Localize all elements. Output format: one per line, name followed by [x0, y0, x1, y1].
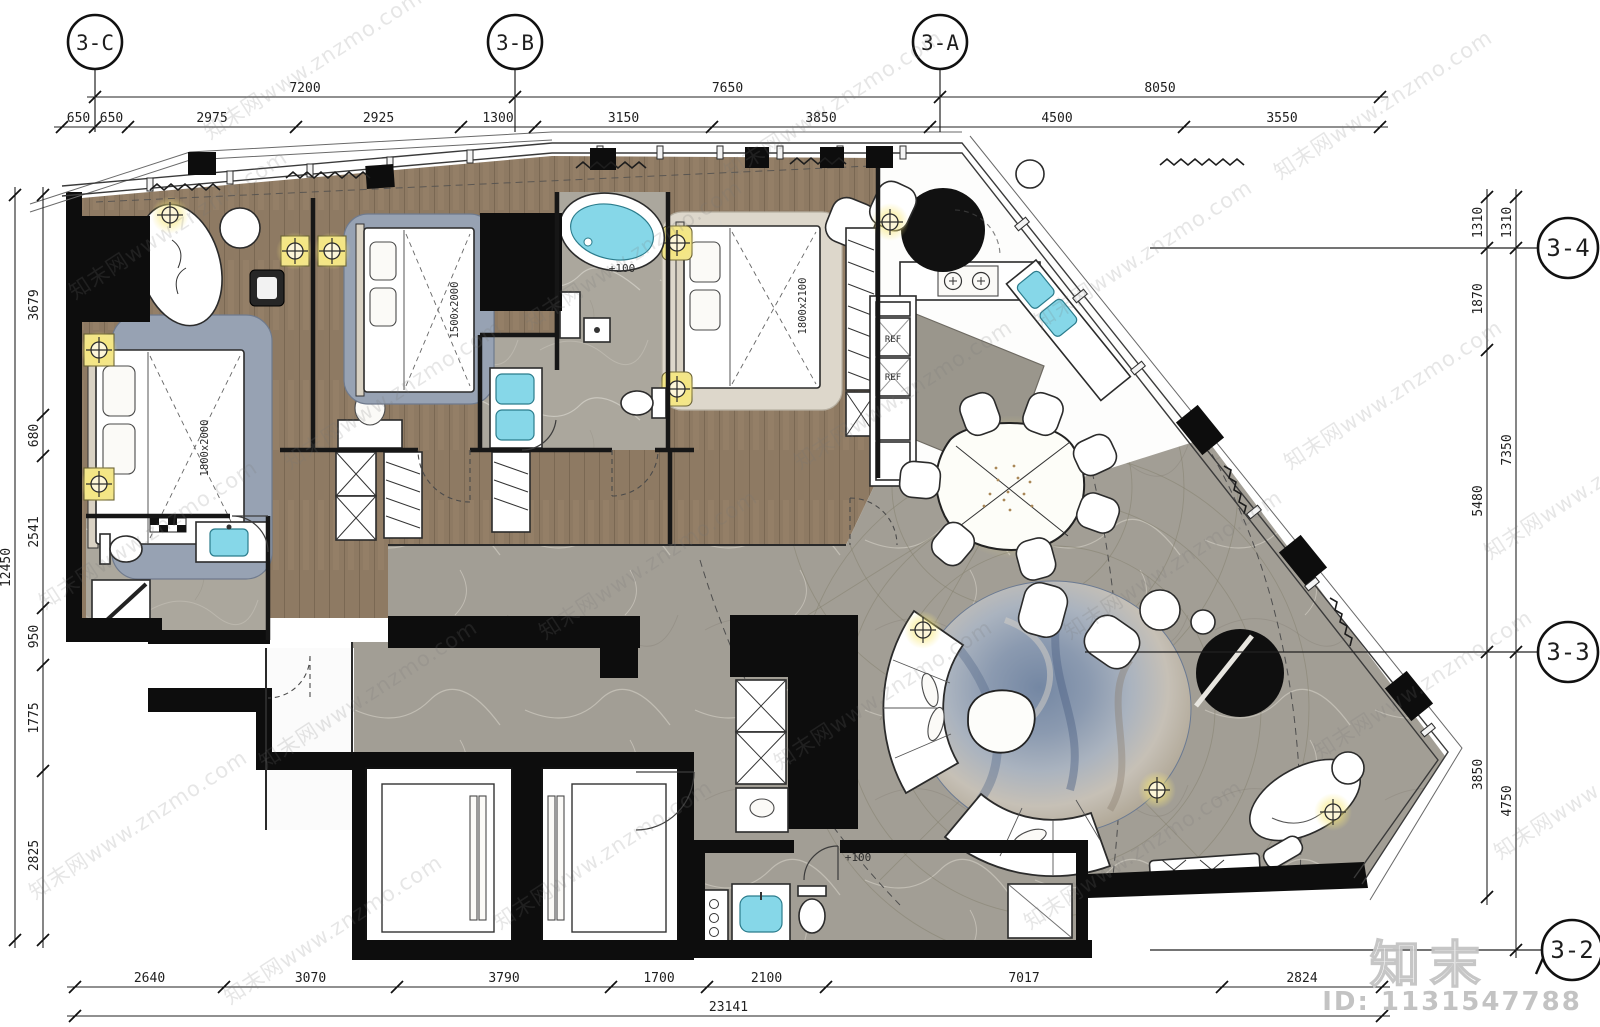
toilet-bowl [799, 899, 825, 933]
dim-label: 2640 [134, 971, 165, 986]
grid-bubble-label: 3-C [76, 31, 114, 55]
znzmo-logo: 知末 [1370, 936, 1490, 994]
armchair-dark-seat [257, 277, 277, 299]
plan-annotation: REF [885, 373, 901, 383]
dim-label: 1870 [1471, 283, 1486, 314]
coffee-table [968, 690, 1035, 752]
elevator-door-rail [479, 796, 486, 920]
grid-bubble-label: 3-4 [1546, 234, 1589, 262]
dim-label: 1775 [27, 702, 42, 733]
basin-faucet [594, 327, 600, 333]
plan-annotation: 1500x2000 [449, 282, 461, 339]
stool [1191, 610, 1215, 634]
luggage-rack [492, 452, 530, 532]
dim-label: 8050 [1144, 81, 1175, 96]
floorplan-page: 7200765080506506502975292513003150385045… [0, 0, 1600, 1027]
bed2-headboard [356, 224, 364, 396]
bed1-pillow [103, 424, 135, 474]
dim-label: 650 [67, 111, 90, 126]
dim-label: 3790 [488, 971, 519, 986]
bed3-pillow [690, 290, 720, 330]
elevator-door-rail [470, 796, 477, 920]
dim-label: 2100 [751, 971, 782, 986]
dim-label: 2925 [363, 111, 394, 126]
watermark-text: 知末网www.znzmo.com [1490, 705, 1600, 864]
powder-sink [740, 896, 782, 932]
dim-label: 7650 [712, 81, 743, 96]
fridge-box [876, 302, 910, 316]
dim-label: 1310 [1471, 207, 1486, 238]
watermark-text: 知末网www.znzmo.com [1480, 405, 1600, 564]
dim-label: 4500 [1041, 111, 1072, 126]
elevator-shaft [366, 768, 512, 944]
plan-annotation: 1800x2100 [797, 278, 809, 335]
bed1-pillow [103, 366, 135, 416]
bed2-pillow [370, 288, 396, 326]
watermark-id-label: ID: 1131547788 [1322, 987, 1582, 1017]
plan-annotation: +100 [845, 851, 872, 864]
vanity-sink [210, 529, 248, 556]
dim-label: 3850 [1471, 759, 1486, 790]
dim-label: 2825 [27, 840, 42, 871]
grid-bubble-label: 3-2 [1550, 936, 1593, 964]
bathtub-drain [584, 238, 592, 246]
dim-label: 7350 [1500, 434, 1515, 465]
dim-label: 3070 [295, 971, 326, 986]
watermark-text: 知末网www.znzmo.com [1270, 25, 1497, 184]
dim-label: 5480 [1471, 485, 1486, 516]
round-side-table-black [1196, 629, 1284, 717]
toilet-tank [798, 886, 826, 896]
dim-label: 650 [100, 111, 123, 126]
elevator-door-rail [557, 796, 564, 920]
dim-label: 12450 [0, 548, 14, 587]
vanity-sink [496, 374, 534, 404]
grid-bubble-label: 3-B [496, 31, 534, 55]
toilet-bowl [621, 391, 653, 415]
dim-label: 3550 [1266, 111, 1297, 126]
bed2-pillow [370, 242, 396, 280]
dim-label: 1310 [1500, 207, 1515, 238]
watermark-text: 知末网www.znzmo.com [1280, 315, 1507, 474]
watermark-text: 知末网www.znzmo.com [25, 745, 252, 904]
watermark-text: 知末网www.znzmo.com [1030, 175, 1257, 334]
stool [1016, 160, 1044, 188]
dim-label: 7017 [1008, 971, 1039, 986]
dim-label: 950 [27, 625, 42, 648]
faucet [227, 525, 232, 530]
dim-label: 680 [27, 424, 42, 447]
elevator-block [352, 752, 694, 960]
toilet-tank [652, 388, 666, 418]
grid-bubble-label: 3-3 [1546, 638, 1589, 666]
plan-annotation: REF [885, 335, 901, 345]
dim-label: 1300 [482, 111, 513, 126]
plan-annotation: 1800x2000 [199, 420, 211, 477]
floorplan-drawing: 7200765080506506502975292513003150385045… [0, 0, 1600, 1027]
dim-label: 1700 [643, 971, 674, 986]
vanity-sink [496, 410, 534, 440]
dim-label: 4750 [1500, 785, 1515, 816]
dim-label: 3679 [27, 289, 42, 320]
dim-label: 23141 [709, 1000, 748, 1015]
luggage-rack [384, 452, 422, 538]
dim-label: 3150 [608, 111, 639, 126]
dim-label: 2541 [27, 516, 42, 547]
stool [1332, 752, 1364, 784]
side-table-round [220, 208, 260, 248]
dim-label: 2824 [1286, 971, 1317, 986]
